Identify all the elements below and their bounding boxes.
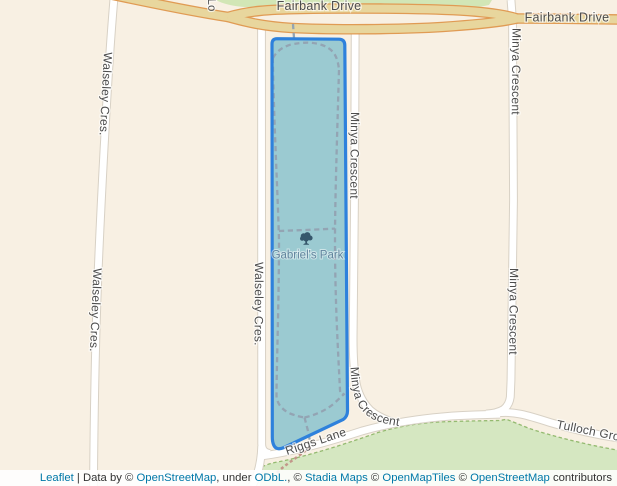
svg-text:Lo: Lo: [205, 0, 217, 12]
svg-text:Walseley Cres.: Walseley Cres.: [252, 262, 266, 346]
svg-text:Fairbank Drive: Fairbank Drive: [277, 0, 362, 13]
svg-text:Minya Crescent: Minya Crescent: [347, 112, 362, 199]
svg-text:Gabriel's Park: Gabriel's Park: [272, 250, 344, 262]
svg-text:Minya Crescent: Minya Crescent: [509, 28, 524, 115]
svg-text:Fairbank Drive: Fairbank Drive: [525, 10, 610, 24]
svg-text:Minya Crescent: Minya Crescent: [506, 268, 521, 355]
